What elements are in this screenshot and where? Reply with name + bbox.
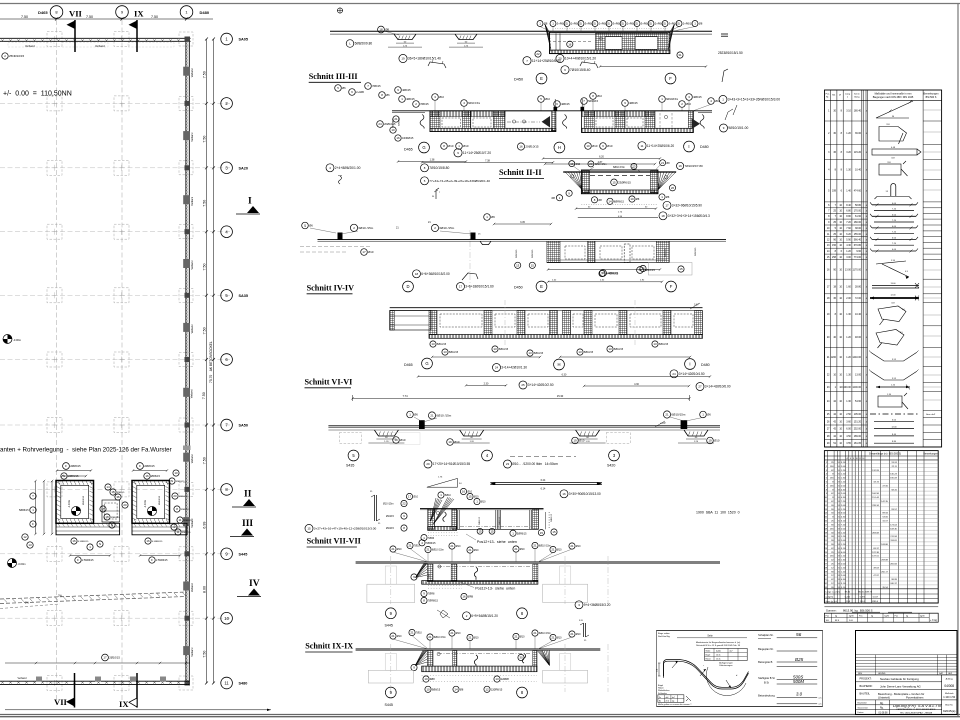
svg-text:Seite: Seite [707, 635, 713, 638]
svg-text:SA50: SA50 [239, 424, 249, 428]
svg-text:Verband: Verband [191, 260, 194, 270]
svg-text:4.5NR6/15: 4.5NR6/15 [78, 541, 89, 543]
svg-text:kg/St: kg/St [885, 615, 890, 618]
svg-text:15: 15 [101, 507, 105, 511]
svg-text:3.45: 3.45 [520, 221, 525, 224]
svg-text:1.60: 1.60 [846, 286, 851, 289]
svg-text:D480: D480 [701, 363, 710, 367]
svg-text:5ØR6/15: 5ØR6/15 [499, 516, 501, 525]
svg-text:Ø10: Ø10 [481, 501, 486, 504]
svg-text:kg: kg [871, 616, 873, 618]
svg-text:Ø10: Ø10 [557, 637, 562, 640]
svg-text:1.20: 1.20 [846, 250, 851, 253]
svg-text:24: 24 [378, 122, 382, 126]
svg-text:670.80: 670.80 [854, 244, 862, 247]
svg-text:Biegeplan Nr.: Biegeplan Nr. [758, 647, 774, 651]
svg-text:Ø6: Ø6 [707, 413, 711, 417]
svg-text:189.00: 189.00 [854, 435, 862, 438]
svg-text:115.20: 115.20 [854, 151, 862, 154]
svg-text:155.00: 155.00 [854, 233, 862, 236]
svg-text:2089.73: 2089.73 [864, 592, 872, 594]
svg-text:0.617: 0.617 [873, 596, 879, 598]
svg-text:156: 156 [832, 244, 837, 247]
svg-text:Fe: Fe [659, 697, 661, 699]
svg-text:Schlaufen: Schlaufen [658, 693, 667, 695]
svg-text:19.24: 19.24 [891, 462, 897, 464]
svg-text:Länge l. g d (m): Länge l. g d (m) [826, 592, 841, 594]
svg-text:53.66: 53.66 [882, 517, 888, 519]
svg-text:23: 23 [506, 462, 510, 466]
svg-text:170.00: 170.00 [854, 210, 862, 213]
svg-text:29: 29 [426, 462, 430, 466]
svg-text:T: T [32, 494, 34, 498]
svg-text:17: 17 [665, 204, 669, 208]
svg-text:118.81: 118.81 [890, 540, 897, 542]
svg-text:5NR6/15: 5NR6/15 [111, 517, 120, 519]
svg-text:-0.00m: -0.00m [18, 562, 26, 566]
svg-text:Datum: Datum [858, 711, 864, 714]
svg-text:10NRØ/15: 10NRØ/15 [402, 137, 414, 140]
svg-text:7.50: 7.50 [151, 15, 158, 19]
svg-text:d=4: d=4 [657, 669, 659, 672]
svg-text:Ø6: Ø6 [386, 93, 390, 97]
svg-text:30: 30 [519, 656, 523, 660]
svg-text:Dipl.Ing (FH) S A V A L I N: Dipl.Ing (FH) S A V A L I N [893, 703, 941, 708]
svg-text:8.40: 8.40 [846, 204, 851, 207]
svg-text:6.20: 6.20 [599, 156, 604, 159]
svg-text:8: 8 [853, 458, 854, 460]
svg-text:500M: 500M [793, 679, 804, 684]
svg-text:01.08.08: 01.08.08 [879, 712, 889, 714]
svg-text:13: 13 [570, 162, 574, 166]
svg-text:BSt 500 S: BSt 500 S [926, 96, 937, 99]
svg-text:21: 21 [450, 544, 454, 548]
svg-text:3+32+3+6+3+14+156Ø10/4.3: 3+32+3+6+3+14+156Ø10/4.3 [668, 214, 710, 218]
svg-text:ØNR6/15: ØNR6/15 [159, 495, 161, 505]
svg-text:Schnitt II-II: Schnitt II-II [499, 168, 542, 177]
svg-text:4Ø10/15: 4Ø10/15 [607, 271, 618, 275]
svg-text:6Ø10 /15m: 6Ø10 /15m [434, 636, 446, 639]
svg-text:20: 20 [173, 494, 177, 498]
svg-text:1.20: 1.20 [846, 132, 851, 135]
svg-text:Gew. abZ: Gew. abZ [926, 414, 936, 416]
svg-text:1440.00: 1440.00 [852, 356, 861, 359]
svg-text:5Ø8/20/9.80: 5Ø8/20/9.80 [355, 42, 373, 46]
svg-text:1200.00: 1200.00 [852, 386, 861, 389]
svg-text:8613.90 kg BSt 500 S: 8613.90 kg BSt 500 S [843, 608, 873, 612]
svg-text:28.80: 28.80 [855, 286, 862, 289]
svg-text:3+27+43+16+47+19+40+12+258Ø10/: 3+27+43+16+47+19+40+12+258Ø10/15/3.00 [314, 527, 377, 531]
svg-text:Biegungen nach DIN 488 / DIN 1: Biegungen nach DIN 488 / DIN 1045 [873, 96, 914, 99]
svg-text:3.55: 3.55 [846, 442, 851, 445]
svg-text:20 d: 20 d [666, 701, 669, 703]
svg-text:10.40: 10.40 [855, 169, 862, 172]
svg-text:21: 21 [410, 631, 414, 635]
svg-text:Ø10: Ø10 [579, 439, 585, 443]
svg-text:ØNR6/15: ØNR6/15 [83, 495, 85, 505]
svg-text:3.0: 3.0 [796, 692, 803, 697]
svg-text:13: 13 [495, 677, 499, 681]
svg-text:7Ø6/15: 7Ø6/15 [420, 102, 429, 106]
svg-text:5ØR6/15: 5ØR6/15 [517, 532, 527, 535]
svg-text:77+34+74+35+2+39+23+18+339Ø6/2: 77+34+74+35+2+39+23+18+339Ø6/20/1.40 [429, 179, 490, 183]
svg-text:Schnitt III-III: Schnitt III-III [309, 72, 358, 81]
svg-text:9.60: 9.60 [856, 250, 861, 253]
svg-text:21: 21 [533, 544, 537, 548]
svg-text:Schnitt IX-IX: Schnitt IX-IX [305, 642, 353, 651]
svg-text:Ø10: Ø10 [714, 439, 720, 443]
svg-text:15: 15 [531, 264, 535, 268]
svg-text:6.30: 6.30 [562, 374, 567, 377]
svg-text:22.11: 22.11 [892, 466, 898, 468]
svg-text:1:100 1:50: 1:100 1:50 [943, 696, 955, 699]
svg-text:4Ø6/15: 4Ø6/15 [406, 97, 415, 101]
svg-text:15 ds: 15 ds [716, 659, 720, 661]
svg-text:Ø10: Ø10 [545, 97, 550, 101]
svg-text:339: 339 [832, 190, 837, 193]
svg-text:6: 6 [850, 458, 851, 460]
svg-text:ØR6/15: ØR6/15 [151, 474, 160, 478]
svg-text:E: E [540, 284, 543, 289]
svg-text:12: 12 [485, 688, 489, 692]
svg-text:18: 18 [105, 515, 109, 519]
svg-text:181.05: 181.05 [854, 442, 862, 445]
svg-text:7ØR8/15: 7ØR8/15 [428, 600, 439, 603]
svg-text:61.60: 61.60 [855, 215, 862, 218]
svg-text:Verband: Verband [191, 454, 194, 464]
svg-text:Ø10: Ø10 [456, 632, 461, 635]
svg-text:3+43+3+15+3+33+26NØ10/15/3.00: 3+43+3+15+3+33+26NØ10/15/3.00 [728, 98, 780, 102]
svg-text:Ø6: Ø6 [309, 224, 313, 228]
svg-text:211.94: 211.94 [890, 536, 897, 538]
svg-text:7Ø10/15/7.80: 7Ø10/15/7.80 [685, 164, 704, 168]
svg-text:Pos: Pos [895, 616, 898, 618]
svg-text:ØR8: ØR8 [468, 596, 474, 599]
svg-text:6.80: 6.80 [846, 210, 851, 213]
svg-text:283.68: 283.68 [872, 532, 879, 534]
svg-text:Betongüte B: Betongüte B [758, 660, 773, 664]
svg-text:132.93: 132.93 [872, 470, 879, 472]
svg-text:11+14+25Ø10/7.20: 11+14+25Ø10/7.20 [463, 151, 491, 155]
svg-text:19: 19 [638, 268, 642, 272]
svg-text:Ø10: Ø10 [557, 549, 562, 552]
svg-text:4Ø6/15: 4Ø6/15 [693, 95, 702, 99]
svg-text:N: N [111, 523, 113, 527]
svg-text:04/008: 04/008 [944, 684, 954, 688]
svg-text:54.60: 54.60 [855, 400, 862, 403]
svg-text:5Ø10/15: 5Ø10/15 [695, 247, 697, 256]
svg-text:Ø10 /15m: Ø10 /15m [383, 503, 394, 506]
svg-text:5Ø10/15: 5Ø10/15 [449, 351, 459, 354]
svg-text:15.30: 15.30 [557, 394, 564, 398]
svg-text:180.00: 180.00 [854, 221, 862, 224]
svg-text:15: 15 [679, 267, 683, 271]
svg-text:Auftrag: Auftrag [946, 678, 954, 681]
svg-text:-1.10m: -1.10m [143, 500, 147, 508]
svg-text:21: 21 [430, 414, 434, 418]
svg-text:Haken: Haken [706, 659, 711, 661]
svg-text:B St: B St [764, 680, 769, 684]
svg-text:John Deere-Lanz Verwaltung AG: John Deere-Lanz Verwaltung AG [880, 684, 921, 688]
svg-text:5ØR6/15: 5ØR6/15 [19, 509, 29, 512]
svg-text:17: 17 [362, 250, 366, 254]
svg-text:380.10: 380.10 [858, 592, 864, 594]
svg-text:Ø10: Ø10 [576, 633, 581, 636]
svg-text:5Ø10/15: 5Ø10/15 [614, 348, 624, 351]
svg-text:d≥7: d≥7 [672, 696, 675, 699]
svg-text:58.31: 58.31 [891, 489, 897, 491]
svg-text:7.50: 7.50 [202, 200, 206, 207]
svg-text:12ØR8/15: 12ØR8/15 [491, 689, 503, 692]
svg-text:18: 18 [415, 272, 419, 276]
svg-text:24: 24 [672, 372, 676, 376]
svg-text:10: 10 [586, 144, 590, 148]
svg-text:2.50: 2.50 [846, 413, 851, 416]
svg-text:4.30: 4.30 [846, 244, 851, 247]
svg-text:7Ø10/15/8.40: 7Ø10/15/8.40 [570, 68, 591, 72]
svg-text:F: F [65, 464, 67, 468]
svg-text:7.50: 7.50 [202, 392, 206, 399]
svg-text:SA20: SA20 [239, 166, 249, 170]
svg-text:I: I [689, 362, 690, 367]
svg-text:Verband: Verband [191, 132, 194, 142]
svg-text:7.74: 7.74 [402, 394, 408, 398]
svg-text:3+14+42Ø10/6.00: 3+14+42Ø10/6.00 [705, 385, 731, 389]
svg-text:16: 16 [146, 539, 150, 543]
svg-text:19: 19 [601, 271, 605, 275]
svg-text:(Unterteil): (Unterteil) [878, 696, 890, 700]
svg-text:Bearbeitet: Bearbeitet [858, 702, 868, 705]
svg-text:12.00: 12.00 [890, 295, 896, 297]
svg-text:1.30: 1.30 [846, 374, 851, 377]
svg-text:8.80: 8.80 [846, 215, 851, 218]
svg-text:Ø10: Ø10 [576, 163, 581, 166]
svg-text:150.1: 150.1 [860, 601, 866, 603]
svg-text:21: 21 [394, 117, 398, 121]
svg-text:16: 16 [568, 42, 572, 46]
svg-text:GRUND: GRUND [878, 673, 886, 675]
svg-text:6Ø10 /15m: 6Ø10 /15m [613, 166, 625, 169]
svg-text:15: 15 [111, 490, 115, 494]
svg-text:142.35: 142.35 [881, 501, 888, 503]
svg-text:1.40: 1.40 [846, 190, 851, 193]
svg-text:23ØR6/15: 23ØR6/15 [618, 181, 631, 185]
svg-text:25: 25 [521, 383, 525, 387]
svg-text:774.00: 774.00 [854, 256, 862, 259]
svg-text:1289.4: 1289.4 [872, 601, 879, 603]
svg-text:IX: IX [134, 9, 144, 19]
svg-text:3+6+18Ø10/15/1.60: 3+6+18Ø10/15/1.60 [465, 285, 494, 289]
svg-text:Ø6: Ø6 [414, 413, 418, 417]
svg-text:22: 22 [536, 52, 540, 56]
svg-text:21: 21 [514, 635, 518, 639]
svg-text:Ø10/15: Ø10/15 [386, 515, 395, 518]
svg-text:5NR6/15: 5NR6/15 [176, 481, 185, 483]
svg-text:kg: kg [835, 616, 837, 618]
svg-text:Verband: Verband [18, 677, 28, 680]
svg-text:35.54: 35.54 [882, 587, 888, 589]
svg-text:Verband: Verband [191, 389, 194, 399]
svg-text:4.30: 4.30 [634, 383, 639, 386]
svg-text:Pos12+13- siehe unten: Pos12+13- siehe unten [477, 540, 517, 544]
svg-text:20: 20 [123, 503, 127, 507]
svg-text:d=7: d=7 [730, 651, 733, 653]
svg-text:17: 17 [103, 656, 107, 660]
svg-text:7.50: 7.50 [202, 327, 206, 334]
svg-text:3.20: 3.20 [846, 151, 851, 154]
svg-text:Schnitt VI-VI: Schnitt VI-VI [305, 378, 353, 387]
svg-text:Ø6: Ø6 [491, 215, 495, 219]
svg-text:7Ø10/15/8.80: 7Ø10/15/8.80 [429, 166, 449, 170]
svg-text:19: 19 [401, 57, 405, 61]
svg-text:13.00: 13.00 [845, 268, 852, 271]
svg-text:Ø10: Ø10 [456, 545, 461, 548]
svg-text:15: 15 [540, 531, 544, 535]
svg-text:12: 12 [859, 458, 861, 460]
svg-text:7.50: 7.50 [202, 264, 206, 271]
svg-text:H: H [558, 145, 561, 150]
svg-text:92045(a): 92045(a) [943, 709, 955, 713]
svg-text:13: 13 [608, 347, 612, 351]
svg-text:Ø10: Ø10 [474, 637, 479, 640]
svg-text:11+14+25Ø10/6.20: 11+14+25Ø10/6.20 [647, 144, 674, 148]
svg-text:14: 14 [608, 200, 612, 204]
svg-text:9+4+36Ø8/15/3.20: 9+4+36Ø8/15/3.20 [584, 603, 611, 607]
svg-text:23: 23 [589, 162, 593, 166]
svg-text:BAUHERR:: BAUHERR: [860, 685, 873, 688]
svg-text:151.20: 151.20 [854, 420, 862, 423]
svg-text:12: 12 [23, 535, 27, 539]
svg-text:Ø10: Ø10 [368, 250, 374, 254]
svg-text:BAUTEIL: BAUTEIL [860, 693, 871, 696]
svg-text:-0.00m: -0.00m [13, 338, 21, 342]
svg-text:N: N [99, 542, 101, 546]
svg-text:2+4Ø6: 2+4Ø6 [356, 90, 364, 94]
svg-text:7.60: 7.60 [846, 227, 851, 230]
svg-text:VII: VII [69, 9, 83, 19]
svg-text:21: 21 [661, 161, 665, 165]
svg-text:S480: S480 [239, 682, 248, 686]
svg-text:7.50: 7.50 [202, 136, 206, 143]
svg-text:7ØR6: 7ØR6 [428, 537, 435, 540]
svg-text:7.50: 7.50 [86, 15, 93, 19]
svg-text:6Ø10 /15m: 6Ø10 /15m [432, 549, 444, 552]
svg-text:5ØØ: 5ØØ [429, 573, 431, 578]
svg-text:26: 26 [671, 186, 675, 190]
svg-text:31: 31 [678, 53, 682, 57]
svg-text:21: 21 [551, 548, 555, 552]
svg-text:58.80: 58.80 [855, 204, 862, 207]
svg-text:259.88: 259.88 [881, 560, 888, 562]
svg-text:16: 16 [72, 539, 76, 543]
svg-text:17: 17 [459, 285, 463, 289]
svg-text:2+4+8Ø6/20/1.00: 2+4+8Ø6/20/1.00 [335, 166, 361, 170]
svg-text:Läng: Läng [845, 94, 851, 96]
svg-text:2ØR6/15: 2ØR6/15 [68, 474, 79, 478]
svg-text:7Ø10: 7Ø10 [416, 632, 423, 635]
svg-text:Bewehrung - Bodenplatte + Grub: Bewehrung - Bodenplatte + Gruben für [878, 692, 924, 696]
svg-text:13: 13 [28, 543, 32, 547]
svg-text:166.58: 166.58 [872, 493, 879, 495]
svg-text:25NR10/15: 25NR10/15 [9, 54, 25, 58]
svg-text:21: 21 [468, 636, 472, 640]
svg-text:20Ø10/15: 20Ø10/15 [384, 122, 396, 126]
svg-text:98.99: 98.99 [891, 579, 897, 581]
svg-text:16: 16 [462, 595, 466, 599]
svg-text:H: H [557, 362, 560, 367]
svg-text:3+32+96Ø10/15/5.90: 3+32+96Ø10/15/5.90 [672, 204, 702, 208]
svg-text:Ø10: Ø10 [520, 548, 525, 551]
svg-text:21: 21 [570, 632, 574, 636]
svg-text:7.50: 7.50 [202, 457, 206, 464]
svg-text:13: 13 [431, 342, 435, 346]
svg-text:22: 22 [402, 502, 406, 506]
svg-text:Ø10: Ø10 [400, 438, 406, 442]
svg-text:kg/St: kg/St [920, 615, 925, 618]
svg-text:13.00: 13.00 [890, 283, 896, 285]
svg-text:5.90: 5.90 [846, 238, 851, 241]
svg-text:15: 15 [552, 530, 556, 534]
svg-text:Nr.: Nr. [826, 96, 829, 99]
svg-text:2.30: 2.30 [484, 382, 489, 385]
svg-text:21: 21 [570, 544, 574, 548]
svg-text:d=4ds: d=4ds [716, 651, 721, 653]
svg-text:Ø10: Ø10 [520, 636, 525, 639]
svg-text:18: 18 [379, 28, 383, 32]
svg-text:13: 13 [516, 264, 520, 268]
svg-text:anten + Rohrverlegung - sieh: anten + Rohrverlegung - siehe Plan 2025-… [0, 447, 172, 454]
svg-text:I: I [688, 144, 689, 149]
svg-text:13: 13 [443, 350, 447, 354]
svg-text:5Ø10/15: 5Ø10/15 [588, 99, 599, 103]
svg-text:18.74: 18.74 [873, 482, 879, 484]
svg-text:Rohrstahl B St = 15 S gemäß DI: Rohrstahl B St = 15 S gemäß DIN 1045 Tab… [696, 644, 741, 647]
svg-text:11+14+25Ø10/6.80: 11+14+25Ø10/6.80 [532, 59, 561, 63]
svg-text:21: 21 [391, 547, 395, 551]
svg-text:g (kg/m): g (kg/m) [826, 596, 834, 598]
svg-text:75.70 AK BETONSOCKEL: 75.70 AK BETONSOCKEL [209, 341, 213, 383]
svg-text:10: 10 [426, 688, 430, 692]
svg-text:2ØR6/15: 2ØR6/15 [144, 464, 155, 468]
svg-text:TEL: 0821-830871/FAX: -788348: TEL: 0821-830871/FAX: -788348 [900, 712, 933, 715]
svg-text:Ø10/15: Ø10/15 [386, 527, 395, 530]
svg-text:109.86: 109.86 [881, 544, 888, 546]
svg-text:19: 19 [448, 440, 452, 444]
svg-text:S445: S445 [385, 703, 393, 707]
svg-text:SA05: SA05 [239, 38, 249, 42]
svg-text:Maße gelten nur aussen bis aus: Maße gelten nur aussen bis aussen ? [658, 703, 692, 706]
svg-text:VII: VII [54, 697, 68, 707]
svg-text:19: 19 [573, 439, 577, 443]
svg-text:F: F [139, 464, 141, 468]
svg-text:1.30: 1.30 [846, 400, 851, 403]
svg-text:Porverkabinen: Porverkabinen [906, 696, 924, 700]
svg-text:D480: D480 [700, 145, 709, 149]
svg-text:Mindestwerte für Biegerollendu: Mindestwerte für Biegerollendurchmesser … [696, 641, 741, 644]
svg-text:Ø10: Ø10 [463, 144, 469, 148]
svg-text:5Ø10: 5Ø10 [445, 494, 452, 497]
svg-text:474.60: 474.60 [854, 190, 862, 193]
svg-text:12ØR8: 12ØR8 [501, 678, 510, 681]
svg-text:11: 11 [224, 681, 229, 686]
svg-text:cm: cm [819, 704, 822, 706]
svg-text:5NR6/15: 5NR6/15 [179, 496, 188, 498]
svg-text:Bemerkungen: Bemerkungen [923, 453, 938, 456]
svg-text:D: D [406, 284, 409, 289]
svg-text:D465: D465 [38, 10, 48, 15]
svg-text:13.00: 13.00 [855, 374, 862, 377]
svg-text:Ø10: Ø10 [597, 94, 602, 98]
